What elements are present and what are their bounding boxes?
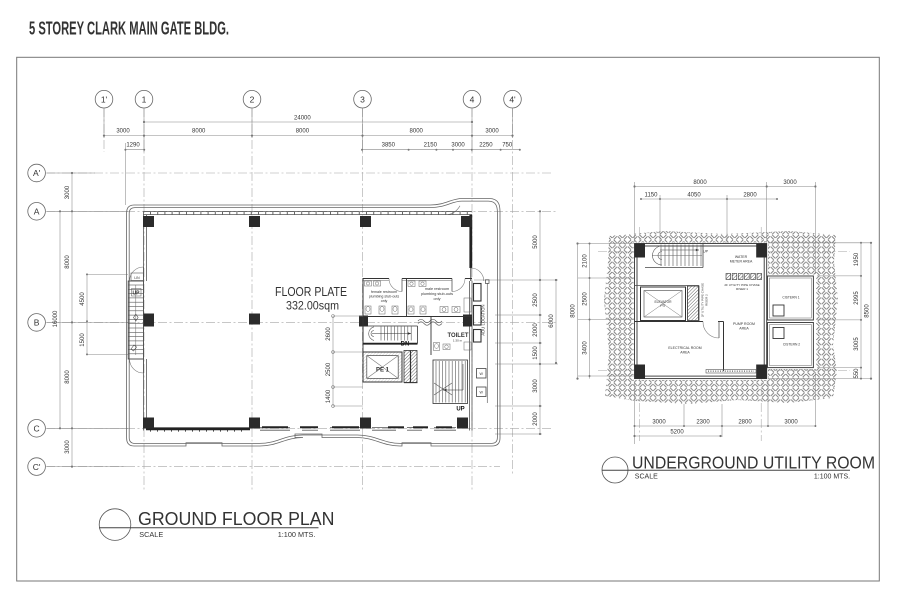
svg-text:3000: 3000 xyxy=(652,419,666,425)
svg-text:C: C xyxy=(34,424,40,434)
svg-text:METER AREA: METER AREA xyxy=(730,260,753,264)
svg-text:750: 750 xyxy=(502,143,513,149)
svg-text:3000: 3000 xyxy=(533,379,539,393)
svg-text:LIN: LIN xyxy=(134,276,140,280)
svg-text:16000: 16000 xyxy=(53,310,59,327)
svg-text:RISER 1: RISER 1 xyxy=(736,287,748,291)
svg-text:6000: 6000 xyxy=(549,314,555,328)
svg-text:3000: 3000 xyxy=(65,440,71,454)
svg-text:2300: 2300 xyxy=(696,419,710,425)
svg-text:1500: 1500 xyxy=(80,333,86,347)
svg-text:4': 4' xyxy=(509,94,516,104)
svg-text:5000: 5000 xyxy=(533,235,539,249)
svg-text:2500: 2500 xyxy=(326,362,332,376)
svg-text:2000: 2000 xyxy=(533,323,539,337)
svg-text:1290: 1290 xyxy=(126,143,140,149)
svg-text:ELECTRICAL ROOM: ELECTRICAL ROOM xyxy=(668,346,701,350)
svg-text:4: 4 xyxy=(470,94,475,104)
svg-text:SCALE: SCALE xyxy=(635,474,658,481)
svg-text:WATER: WATER xyxy=(735,255,748,259)
svg-text:male restroom: male restroom xyxy=(425,287,449,291)
svg-text:3850: 3850 xyxy=(382,143,396,149)
svg-text:2500: 2500 xyxy=(583,292,589,306)
svg-text:2100: 2100 xyxy=(583,254,589,268)
svg-text:3000: 3000 xyxy=(783,180,797,186)
svg-text:3000: 3000 xyxy=(65,185,71,199)
svg-text:4050: 4050 xyxy=(687,192,701,198)
svg-text:3000: 3000 xyxy=(485,129,499,135)
svg-text:B: B xyxy=(34,318,40,328)
svg-text:2000: 2000 xyxy=(533,412,539,426)
svg-text:3005: 3005 xyxy=(854,337,860,351)
svg-text:AREA: AREA xyxy=(739,327,749,331)
svg-text:8500: 8500 xyxy=(865,304,871,318)
svg-text:AREA: AREA xyxy=(680,351,690,355)
svg-text:UP: UP xyxy=(133,291,141,297)
svg-text:2: 2 xyxy=(250,94,255,104)
svg-text:A': A' xyxy=(33,168,41,178)
svg-text:1: 1 xyxy=(142,94,147,104)
svg-text:2250: 2250 xyxy=(479,143,493,149)
svg-text:CISTERN 2: CISTERN 2 xyxy=(783,343,800,347)
svg-text:8000: 8000 xyxy=(693,180,707,186)
svg-text:only: only xyxy=(381,299,388,303)
svg-text:2600: 2600 xyxy=(326,327,332,341)
svg-text:plumbing stub-outs: plumbing stub-outs xyxy=(369,295,400,299)
svg-text:SCALE: SCALE xyxy=(139,530,163,539)
svg-text:1500: 1500 xyxy=(533,346,539,360)
svg-text:1950: 1950 xyxy=(854,252,860,266)
svg-text:3: 3 xyxy=(360,94,365,104)
svg-text:8000: 8000 xyxy=(571,304,577,318)
svg-text:2500: 2500 xyxy=(533,293,539,307)
svg-text:2800: 2800 xyxy=(738,419,752,425)
svg-text:332.00sqm: 332.00sqm xyxy=(286,301,339,313)
svg-text:UP: UP xyxy=(703,250,709,254)
svg-text:PE 1: PE 1 xyxy=(376,368,390,374)
svg-text:4500: 4500 xyxy=(80,292,86,306)
svg-text:GROUND FLOOR PLAN: GROUND FLOOR PLAN xyxy=(138,508,335,529)
svg-text:1': 1' xyxy=(101,94,108,104)
svg-text:FLOOR PLATE: FLOOR PLATE xyxy=(275,284,347,299)
svg-text:8000: 8000 xyxy=(192,129,206,135)
svg-text:PIT: PIT xyxy=(660,304,665,308)
svg-text:CISTERN 1: CISTERN 1 xyxy=(782,296,799,300)
svg-text:8000: 8000 xyxy=(296,129,310,135)
svg-text:550: 550 xyxy=(854,368,860,379)
svg-text:PUMP ROOM: PUMP ROOM xyxy=(733,322,755,326)
svg-text:W: W xyxy=(479,391,483,395)
svg-text:1:100 MTS.: 1:100 MTS. xyxy=(278,530,316,539)
svg-text:1400: 1400 xyxy=(326,389,332,403)
svg-text:UP: UP xyxy=(456,407,464,413)
svg-text:1:30 m: 1:30 m xyxy=(453,339,463,343)
svg-text:1:100 MTS.: 1:100 MTS. xyxy=(814,474,850,481)
svg-text:8000: 8000 xyxy=(65,255,71,269)
svg-text:5 STOREY CLARK MAIN GATE BLDG.: 5 STOREY CLARK MAIN GATE BLDG. xyxy=(29,18,229,39)
svg-text:24000: 24000 xyxy=(294,115,311,121)
svg-text:2800: 2800 xyxy=(743,192,757,198)
svg-text:3000: 3000 xyxy=(116,129,130,135)
svg-text:female restroom: female restroom xyxy=(371,290,397,294)
svg-text:8000: 8000 xyxy=(410,129,424,135)
svg-text:2150: 2150 xyxy=(424,143,438,149)
svg-text:2995: 2995 xyxy=(854,291,860,305)
svg-text:3000: 3000 xyxy=(451,143,465,149)
svg-text:C': C' xyxy=(33,462,41,472)
svg-text:5200: 5200 xyxy=(670,430,684,436)
svg-text:UNDERGROUND UTILITY ROOM: UNDERGROUND UTILITY ROOM xyxy=(632,452,875,472)
svg-text:8000: 8000 xyxy=(65,370,71,384)
svg-text:3400: 3400 xyxy=(583,341,589,355)
svg-text:ADU LOCATION: ADU LOCATION xyxy=(481,304,486,335)
svg-text:3000: 3000 xyxy=(784,419,798,425)
svg-text:1150: 1150 xyxy=(645,192,659,198)
svg-text:A: A xyxy=(34,207,40,217)
svg-text:plumbing stub-outs: plumbing stub-outs xyxy=(421,292,453,296)
svg-text:W: W xyxy=(479,372,483,376)
svg-text:RISER 2: RISER 2 xyxy=(705,294,709,306)
svg-text:only: only xyxy=(434,297,441,301)
